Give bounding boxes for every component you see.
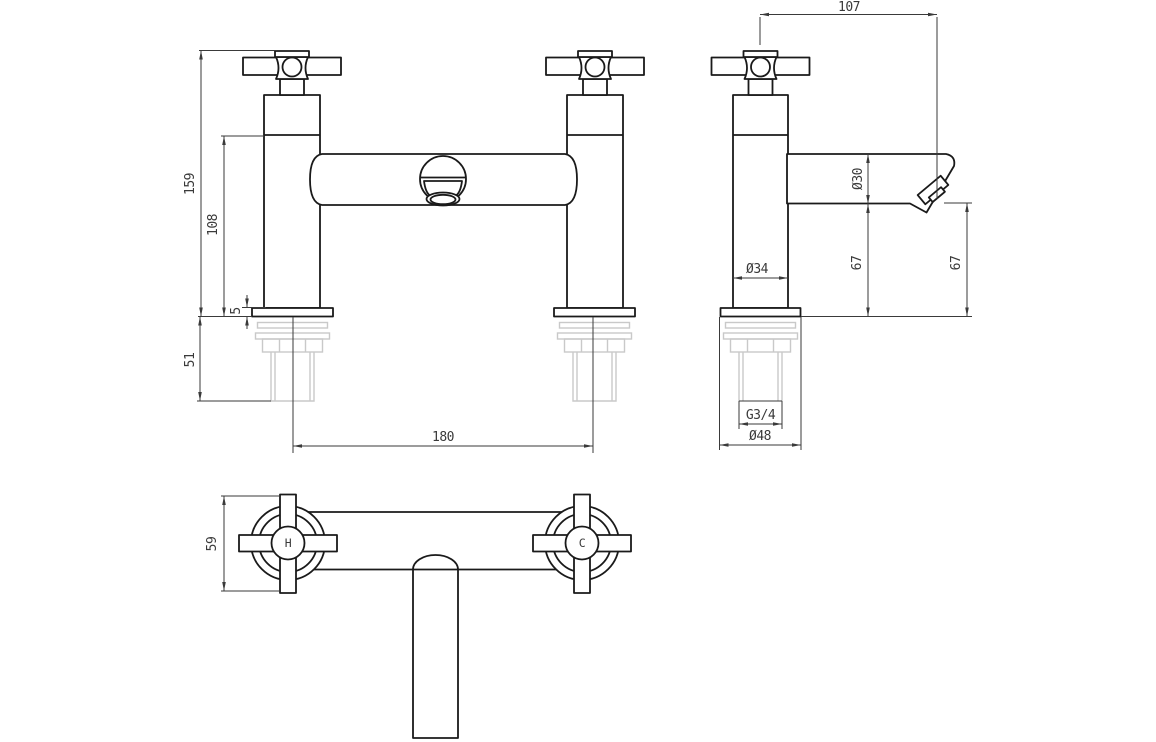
arrow (760, 13, 769, 17)
dim-label-dia34: Ø34 (746, 262, 769, 277)
dim-108-lines (221, 136, 264, 317)
arrow (199, 51, 203, 60)
arrow (584, 444, 593, 448)
bath-filler-dimension-drawing: 159 108 5 51 180 107 Ø34 Ø30 67 67 G3/4 … (0, 0, 1156, 742)
dim-label-g34: G3/4 (746, 408, 776, 423)
cold-indicator-label: C (579, 536, 586, 550)
dim-label-67-left: 67 (850, 256, 865, 271)
handle-top-cap (275, 51, 309, 57)
arrow (222, 136, 226, 145)
plan-view (239, 495, 631, 739)
dim-label-108: 108 (206, 214, 221, 236)
handle-top-cap (578, 51, 612, 57)
arrow (222, 308, 226, 317)
dim-label-59: 59 (205, 537, 220, 552)
handle-stem (583, 79, 607, 95)
handle-stem (280, 79, 304, 95)
base-flange-side (721, 308, 801, 317)
arrow (293, 444, 302, 448)
base-flange-left (252, 308, 333, 317)
dim-51-lines (197, 317, 271, 402)
pillar-right (567, 95, 623, 308)
under-deck-assembly-front-right (558, 323, 632, 402)
dim-label-107: 107 (838, 0, 860, 15)
front-view (243, 51, 644, 317)
under-deck-assembly-side (724, 323, 798, 402)
arrow (792, 443, 801, 447)
handle-top-cap (744, 51, 778, 57)
dim-label-5: 5 (229, 307, 244, 314)
arrow (199, 308, 203, 317)
arrow (222, 496, 226, 505)
object-lines (239, 51, 954, 738)
washer (558, 333, 632, 339)
arrow (222, 582, 226, 591)
backnut (565, 339, 625, 352)
arrow (965, 308, 969, 317)
cross-handle-side (712, 51, 810, 95)
washer (724, 333, 798, 339)
arrow (928, 13, 937, 17)
arrow (720, 443, 729, 447)
arrow (866, 204, 870, 213)
arrow (866, 308, 870, 317)
backnut (731, 339, 791, 352)
threaded-tail (573, 352, 616, 401)
dim-label-67-right: 67 (949, 256, 964, 271)
dim-label-180: 180 (432, 430, 454, 445)
dim-label-51: 51 (183, 353, 198, 368)
arrow (245, 317, 249, 326)
dim-label-dia48: Ø48 (749, 429, 771, 444)
technical-drawing-sheet: 159 108 5 51 180 107 Ø34 Ø30 67 67 G3/4 … (0, 0, 1156, 742)
cross-handle-front-left (243, 51, 341, 95)
plan-spout (413, 555, 458, 738)
hidden-hardware (256, 323, 798, 402)
washer (560, 323, 630, 329)
handle-stem (749, 79, 773, 95)
threaded-tail (739, 352, 782, 401)
handle-hub-circle (283, 58, 302, 77)
cross-handle-front-right (546, 51, 644, 95)
backnut-facets (748, 339, 774, 352)
dim-label-dia30: Ø30 (851, 168, 866, 190)
pillar-left (264, 95, 320, 308)
handle-hub-circle (586, 58, 605, 77)
hot-indicator-label: H (285, 536, 292, 550)
arrow (965, 203, 969, 212)
backnut-facets (582, 339, 608, 352)
arrow (198, 392, 202, 401)
spout-side (787, 154, 954, 213)
arrow (198, 317, 202, 326)
washer (726, 323, 796, 329)
arrow (245, 299, 249, 308)
dim-label-159: 159 (183, 173, 198, 195)
base-flange-right (554, 308, 635, 317)
handle-hub-circle (751, 58, 770, 77)
centre-spout-front (420, 156, 466, 206)
